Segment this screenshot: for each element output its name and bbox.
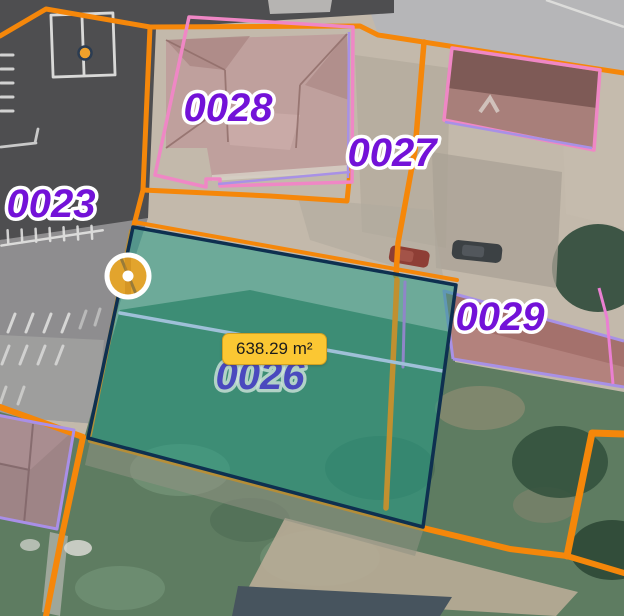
parcel-label-0027: 0027 (348, 131, 439, 175)
map-canvas[interactable]: 0023 0028 0027 0029 0026 (0, 0, 624, 616)
measurement-area-value: 638.29 m² (236, 339, 313, 359)
parcel-label-0023: 0023 (7, 182, 96, 226)
map-point-marker[interactable] (79, 47, 92, 60)
parcel-label-0028: 0028 (184, 86, 274, 130)
measurement-area-tooltip: 638.29 m² (222, 333, 327, 365)
marker-center-dot (123, 271, 134, 282)
measurement-vertex-marker[interactable] (105, 253, 152, 300)
map-viewport[interactable]: 0023 0028 0027 0029 0026 638.29 m² (0, 0, 624, 616)
parcel-label-0029: 0029 (456, 295, 546, 339)
